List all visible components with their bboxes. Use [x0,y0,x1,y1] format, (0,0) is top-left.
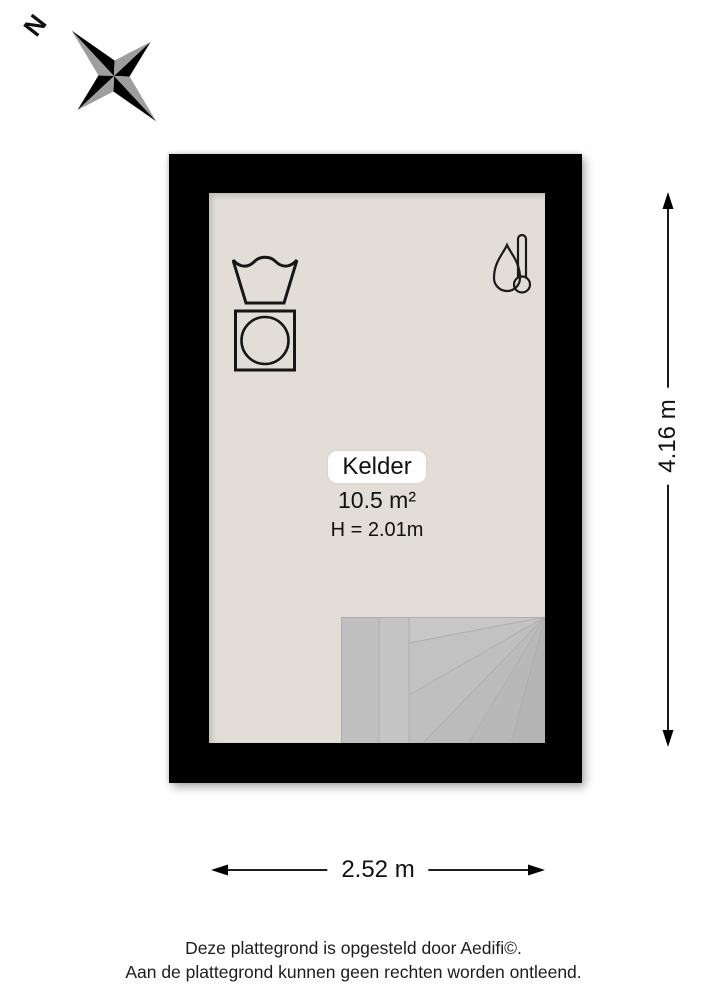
compass-rose-icon [20,4,175,134]
disclaimer: Deze plattegrond is opgesteld door Aedif… [0,936,707,984]
dimension-horizontal: 2.52 m [210,858,546,882]
washing-machine-icon [232,251,298,373]
room-area: 10.5 m² [338,488,416,513]
water-heater-icon [488,228,536,298]
dimension-vertical: 4.16 m [657,191,679,748]
room-name: Kelder [328,451,425,483]
stairs-icon [341,617,545,743]
basement-floorplan: Kelder 10.5 m² H = 2.01m [169,154,582,783]
room-ceiling-height: H = 2.01m [331,519,424,541]
dimension-height-label: 4.16 m [654,387,682,484]
room-kelder: Kelder 10.5 m² H = 2.01m [209,193,545,743]
disclaimer-line1: Deze plattegrond is opgesteld door Aedif… [0,936,707,960]
disclaimer-line2: Aan de plattegrond kunnen geen rechten w… [0,960,707,984]
dimension-width-label: 2.52 m [327,856,428,884]
room-label: Kelder 10.5 m² H = 2.01m [209,451,545,541]
compass: N [20,4,175,134]
